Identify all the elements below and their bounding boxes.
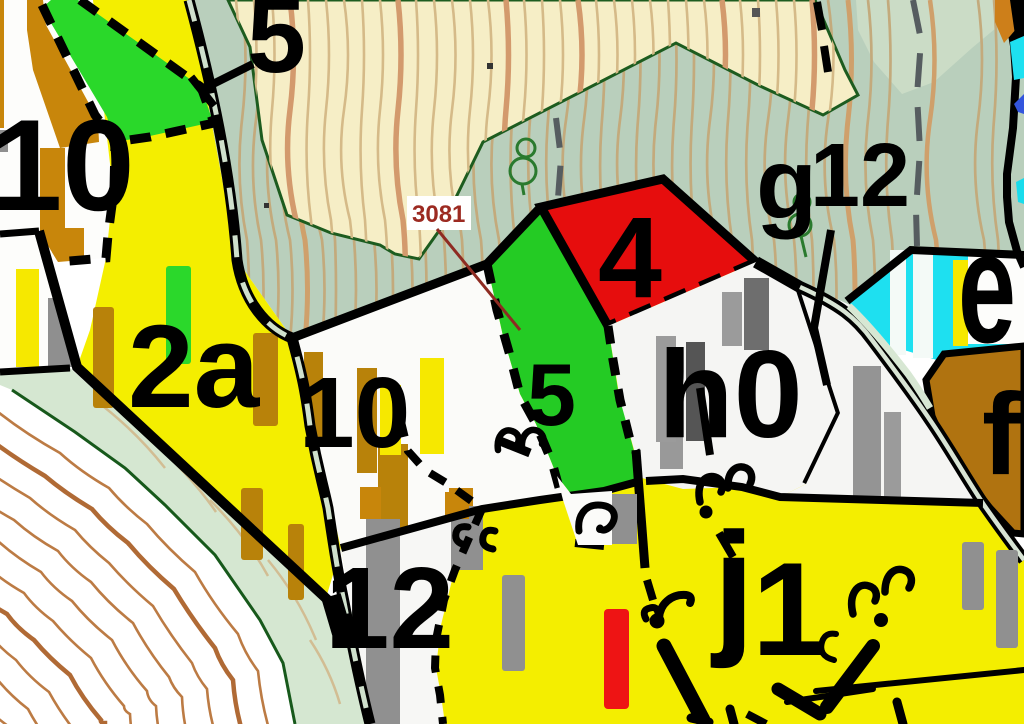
svg-text:5: 5 [527,345,576,444]
svg-text:h0: h0 [658,326,803,464]
svg-text:2a: 2a [128,301,261,433]
svg-text:j: j [710,501,755,669]
svg-text:3081: 3081 [412,201,465,228]
svg-text:10: 10 [299,357,410,469]
svg-text:12: 12 [325,543,454,673]
svg-text:10: 10 [0,92,135,238]
svg-text:5: 5 [247,0,306,95]
svg-text:4: 4 [598,194,662,322]
svg-text:1: 1 [752,536,826,684]
svg-text:f: f [982,369,1021,499]
svg-text:12: 12 [810,126,910,226]
svg-text:g: g [756,128,817,240]
